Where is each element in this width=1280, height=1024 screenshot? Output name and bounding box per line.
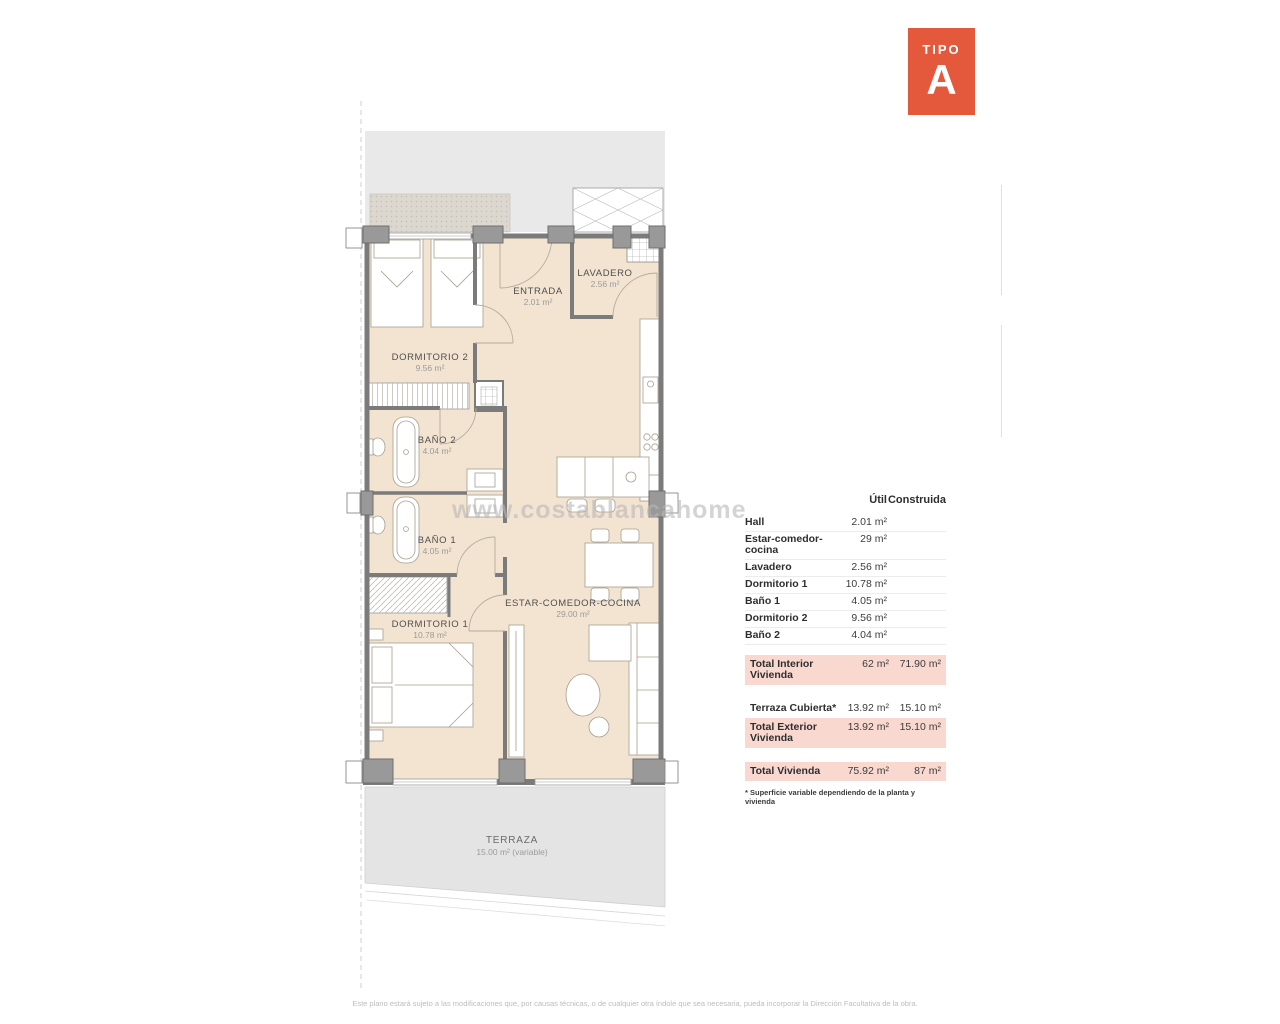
total-label: Total Interior Vivienda: [750, 659, 845, 681]
row-util: 10.78 m²: [840, 579, 887, 590]
row-label: Hall: [745, 517, 840, 528]
row-label: Baño 2: [745, 630, 840, 641]
terraza-cubierta-row: Terraza Cubierta* 13.92 m² 15.10 m²: [745, 699, 946, 718]
row-util: 4.04 m²: [840, 630, 887, 641]
room-label-estar: ESTAR-COMEDOR-COCINA: [505, 598, 641, 609]
table-row: Estar-comedor-cocina 29 m²: [745, 532, 946, 560]
total-label: Total Exterior Vivienda: [750, 722, 845, 744]
room-area-bano2: 4.04 m²: [423, 446, 452, 456]
room-label-bano2: BAÑO 2: [418, 435, 456, 446]
row-construida: [887, 517, 946, 528]
row-construida: [887, 613, 946, 624]
disclaimer-text: Este plano estará sujeto a las modificac…: [350, 999, 920, 1008]
row-util: 2.56 m²: [840, 562, 887, 573]
row-construida: [887, 562, 946, 573]
room-area-bano1: 4.05 m²: [423, 546, 452, 556]
total-construida: 15.10 m²: [889, 703, 941, 714]
room-label-dormitorio2: DORMITORIO 2: [392, 352, 469, 363]
total-construida: 71.90 m²: [889, 659, 941, 681]
floorplan-sheet: TIPO A: [0, 0, 1280, 1024]
header-util: Útil: [840, 494, 887, 506]
room-area-dormitorio1: 10.78 m²: [413, 630, 447, 640]
watermark: www.costablancahome: [452, 496, 747, 525]
table-row: Baño 2 4.04 m²: [745, 628, 946, 645]
total-vivienda-row: Total Vivienda 75.92 m² 87 m²: [745, 762, 946, 781]
floorplan-drawing: DORMITORIO 2 9.56 m² ENTRADA 2.01 m² LAV…: [345, 95, 680, 995]
total-exterior-row: Total Exterior Vivienda 13.92 m² 15.10 m…: [745, 718, 946, 748]
header-construida: Construida: [887, 494, 946, 506]
total-construida: 15.10 m²: [889, 722, 941, 744]
table-row: Baño 1 4.05 m²: [745, 594, 946, 611]
room-label-bano1: BAÑO 1: [418, 535, 456, 546]
boundary-line-bottom: [1001, 325, 1002, 437]
room-area-terraza: 15.00 m² (variable): [476, 847, 548, 857]
type-badge: TIPO A: [908, 28, 975, 115]
row-util: 2.01 m²: [840, 517, 887, 528]
total-construida: 87 m²: [889, 766, 941, 777]
row-label: Dormitorio 1: [745, 579, 840, 590]
table-footnote: * Superficie variable dependiendo de la …: [745, 788, 946, 806]
table-row: Dormitorio 1 10.78 m²: [745, 577, 946, 594]
room-label-terraza: TERRAZA: [486, 835, 538, 846]
room-area-lavadero: 2.56 m²: [591, 279, 620, 289]
room-label-dormitorio1: DORMITORIO 1: [392, 619, 469, 630]
table-row: Lavadero 2.56 m²: [745, 560, 946, 577]
tv-cabinet: [509, 625, 524, 757]
row-label: Baño 1: [745, 596, 840, 607]
room-area-dormitorio2: 9.56 m²: [416, 363, 445, 373]
row-label: Lavadero: [745, 562, 840, 573]
total-util: 13.92 m²: [845, 722, 889, 744]
total-util: 62 m²: [845, 659, 889, 681]
row-construida: [887, 630, 946, 641]
boundary-line-top: [1001, 185, 1002, 295]
type-badge-letter: A: [926, 59, 956, 101]
row-construida: [887, 534, 946, 556]
room-label-lavadero: LAVADERO: [577, 268, 632, 279]
room-label-entrada: ENTRADA: [513, 286, 563, 297]
room-area-estar: 29.00 m²: [556, 609, 590, 619]
bed-double: [369, 629, 473, 741]
row-construida: [887, 596, 946, 607]
total-interior-row: Total Interior Vivienda 62 m² 71.90 m²: [745, 655, 946, 685]
row-label: Dormitorio 2: [745, 613, 840, 624]
bed-single-1: [371, 237, 423, 327]
table-header: Útil Construida: [745, 494, 946, 506]
room-area-entrada: 2.01 m²: [524, 297, 553, 307]
area-table: Útil Construida Hall 2.01 m² Estar-comed…: [745, 494, 946, 806]
total-label: Terraza Cubierta*: [750, 703, 845, 714]
type-badge-label: TIPO: [922, 42, 960, 57]
total-util: 75.92 m²: [845, 766, 889, 777]
row-util: 4.05 m²: [840, 596, 887, 607]
table-row: Dormitorio 2 9.56 m²: [745, 611, 946, 628]
row-construida: [887, 579, 946, 590]
total-label: Total Vivienda: [750, 766, 845, 777]
row-label: Estar-comedor-cocina: [745, 534, 840, 556]
row-util: 9.56 m²: [840, 613, 887, 624]
table-row: Hall 2.01 m²: [745, 515, 946, 532]
row-util: 29 m²: [840, 534, 887, 556]
total-util: 13.92 m²: [845, 703, 889, 714]
